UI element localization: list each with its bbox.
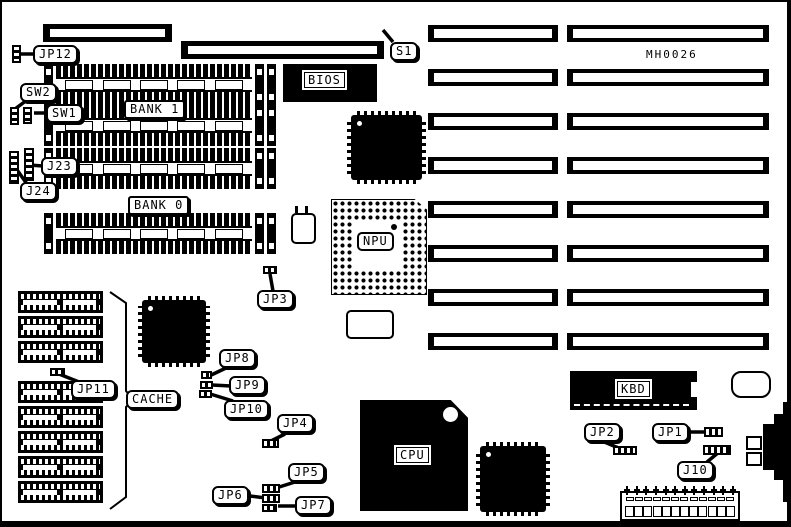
kbd-label: KBD <box>615 379 652 399</box>
part-number: MH0026 <box>646 48 698 61</box>
simm-socket <box>44 213 276 254</box>
cache-label: CACHE <box>126 390 179 409</box>
jp2-label: JP2 <box>584 423 621 442</box>
jp11-label: JP11 <box>71 380 116 399</box>
pin1-dot <box>148 306 153 311</box>
jp3-label: JP3 <box>257 290 294 309</box>
qfp-chip <box>480 446 546 512</box>
motherboard-diagram: S1 MH0026 JP12 <box>0 0 791 527</box>
power-holes <box>625 506 735 517</box>
cache-dip-socket <box>18 431 103 453</box>
expansion-slot-row <box>428 69 769 86</box>
simm-bracket <box>255 64 264 105</box>
jp12-label: JP12 <box>33 45 78 64</box>
din-pin <box>746 452 762 466</box>
expansion-slot-short <box>428 245 558 262</box>
bios-label: BIOS <box>302 70 347 90</box>
sw1-label: SW1 <box>46 104 83 123</box>
qfp-chip <box>351 115 422 180</box>
jp1-jumper <box>704 427 723 437</box>
crystal-leg <box>305 206 308 213</box>
jp8-label: JP8 <box>219 349 256 368</box>
cache-dip-socket <box>18 316 103 338</box>
cpu-label: CPU <box>394 445 431 465</box>
jp12-jumper <box>12 45 21 63</box>
jp9-label: JP9 <box>229 376 266 395</box>
cache-dip-socket <box>18 291 103 313</box>
jp8-jumper <box>201 371 212 379</box>
pin1-dot <box>391 224 397 230</box>
top-slot-short <box>43 24 172 42</box>
expansion-slot-row <box>428 201 769 218</box>
power-contacts <box>626 497 734 502</box>
cache-dip-socket <box>18 341 103 363</box>
simm-bracket <box>255 213 264 254</box>
pin1-dot <box>486 452 491 457</box>
j23-label: J23 <box>41 157 78 176</box>
s1-label: S1 <box>390 42 418 61</box>
top-slot-long <box>181 41 384 59</box>
expansion-slot-short <box>428 25 558 42</box>
jp6-label: JP6 <box>212 486 249 505</box>
bank1-label: BANK 1 <box>124 100 185 119</box>
component-outline <box>731 371 771 398</box>
expansion-slot-short <box>428 333 558 350</box>
expansion-slot-long <box>567 201 769 218</box>
expansion-slot-long <box>567 157 769 174</box>
din-pin <box>746 436 762 450</box>
jp11-jumper <box>50 368 65 376</box>
simm-bracket <box>255 148 264 189</box>
expansion-slot-long <box>567 25 769 42</box>
crystal-leg <box>295 206 298 213</box>
expansion-slot-long <box>567 289 769 306</box>
sw1-switch <box>23 107 32 124</box>
simm-bracket <box>267 148 276 189</box>
board-edge-strip <box>783 402 791 502</box>
j24-label: J24 <box>20 182 57 201</box>
jp3-jumper <box>263 266 277 274</box>
j24-header <box>9 151 19 184</box>
jp7-jumper <box>262 504 277 512</box>
jp4-label: JP4 <box>277 414 314 433</box>
cpu-corner-dot <box>443 407 458 422</box>
j23-header <box>24 148 34 181</box>
expansion-slot-row <box>428 245 769 262</box>
simm-bracket <box>267 64 276 105</box>
bank0-label: BANK 0 <box>128 196 189 215</box>
expansion-slot-row <box>428 25 769 42</box>
jp7-label: JP7 <box>295 496 332 515</box>
jp1-label: JP1 <box>652 423 689 442</box>
expansion-slot-long <box>567 333 769 350</box>
power-connector <box>620 491 740 521</box>
cache-socket-group <box>18 381 103 503</box>
cache-socket-group <box>18 291 103 363</box>
oscillator <box>346 310 394 339</box>
expansion-slot-row <box>428 157 769 174</box>
simm-bracket <box>255 105 264 146</box>
sw2-label: SW2 <box>20 83 57 102</box>
j10-label: J10 <box>677 461 714 480</box>
expansion-slot-short <box>428 201 558 218</box>
j10-header <box>703 445 731 455</box>
simm-socket <box>44 148 276 189</box>
expansion-slot-long <box>567 113 769 130</box>
jp2-jumper <box>613 446 637 455</box>
expansion-slot-long <box>567 69 769 86</box>
expansion-slot-short <box>428 113 558 130</box>
expansion-slot-short <box>428 289 558 306</box>
power-pins <box>624 486 736 495</box>
simm-bracket <box>267 105 276 146</box>
expansion-slot-grid <box>428 25 769 350</box>
expansion-slot-short <box>428 157 558 174</box>
expansion-slot-row <box>428 333 769 350</box>
jp6-jumper <box>262 494 280 503</box>
jp10-label: JP10 <box>224 400 269 419</box>
cache-dip-socket <box>18 456 103 478</box>
jp9-jumper <box>200 381 213 389</box>
jp5-label: JP5 <box>288 463 325 482</box>
expansion-slot-long <box>567 245 769 262</box>
pin1-dot <box>357 121 362 126</box>
cache-dip-socket <box>18 406 103 428</box>
jp5-jumper <box>262 484 280 493</box>
expansion-slot-row <box>428 113 769 130</box>
jp4-jumper <box>262 439 279 448</box>
simm-socket <box>44 64 276 105</box>
qfp-chip <box>142 300 206 363</box>
sw2-switch <box>10 107 19 125</box>
simm-bracket <box>267 213 276 254</box>
expansion-slot-row <box>428 289 769 306</box>
jp10-jumper <box>199 390 212 398</box>
expansion-slot-short <box>428 69 558 86</box>
npu-label: NPU <box>357 232 394 251</box>
crystal <box>291 213 316 244</box>
simm-bracket <box>44 213 53 254</box>
cache-dip-socket <box>18 481 103 503</box>
